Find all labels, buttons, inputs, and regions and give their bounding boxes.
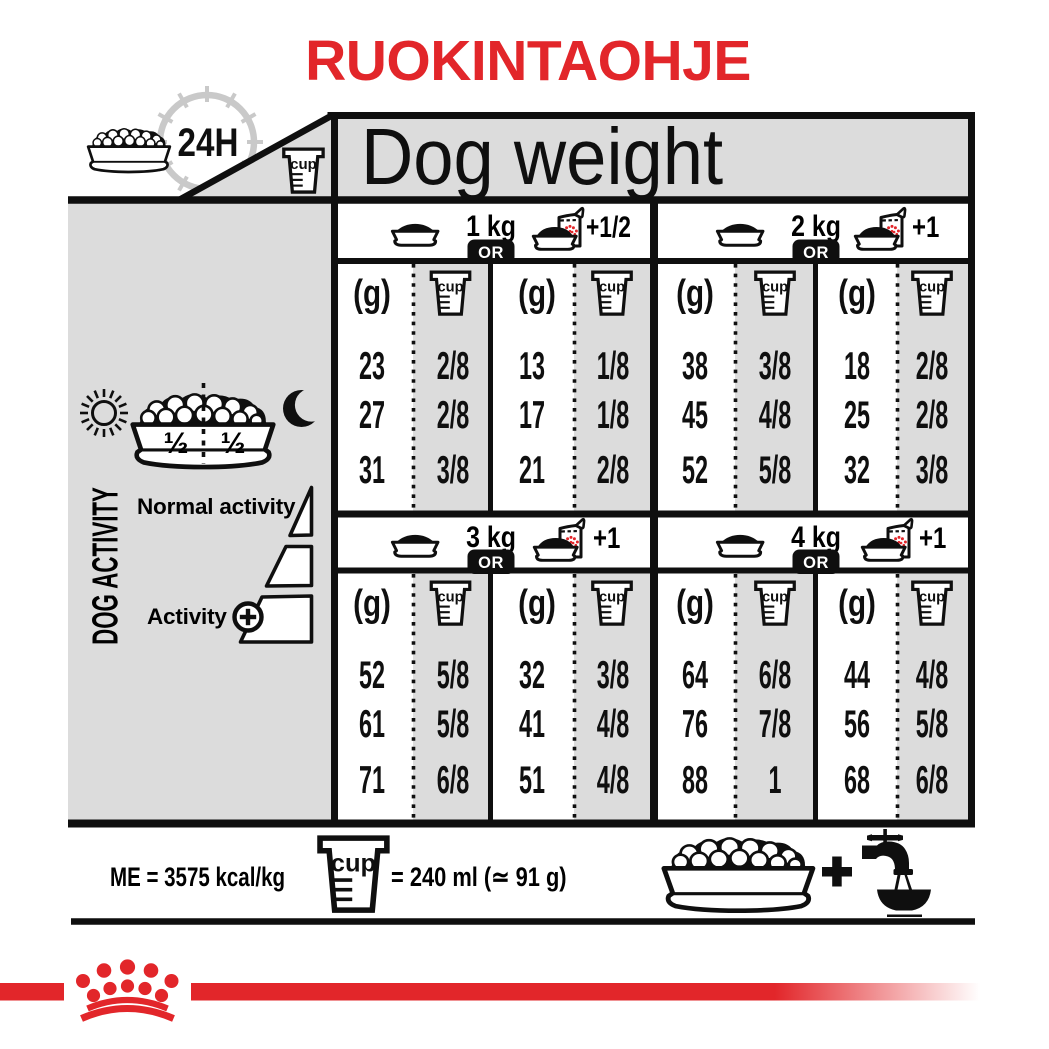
svg-text:38: 38 <box>682 344 708 388</box>
svg-text:(g): (g) <box>518 273 556 315</box>
svg-text:1/8: 1/8 <box>597 344 630 388</box>
svg-text:52: 52 <box>359 653 385 697</box>
svg-text:½: ½ <box>220 427 245 460</box>
svg-text:3 kg: 3 kg <box>466 520 516 554</box>
svg-text:44: 44 <box>844 653 870 697</box>
svg-text:½: ½ <box>163 427 188 460</box>
svg-text:4/8: 4/8 <box>916 653 949 697</box>
svg-text:4/8: 4/8 <box>597 702 630 746</box>
svg-text:(g): (g) <box>676 273 714 315</box>
svg-text:Dog weight: Dog weight <box>361 113 723 202</box>
svg-text:Normal activity: Normal activity <box>137 494 296 519</box>
svg-text:61: 61 <box>359 702 385 746</box>
svg-text:ME = 3575 kcal/kg: ME = 3575 kcal/kg <box>110 862 285 892</box>
svg-text:(g): (g) <box>353 273 391 315</box>
svg-text:4 kg: 4 kg <box>791 520 841 554</box>
svg-text:4/8: 4/8 <box>597 758 630 802</box>
svg-text:+1: +1 <box>593 520 620 554</box>
svg-text:21: 21 <box>519 448 545 492</box>
svg-text:5/8: 5/8 <box>437 702 470 746</box>
svg-text:2/8: 2/8 <box>437 344 470 388</box>
svg-text:7/8: 7/8 <box>759 702 792 746</box>
svg-text:3/8: 3/8 <box>437 448 470 492</box>
svg-text:32: 32 <box>519 653 545 697</box>
svg-text:OR: OR <box>803 554 829 572</box>
svg-text:Activity: Activity <box>147 604 227 629</box>
svg-text:18: 18 <box>844 344 870 388</box>
svg-text:31: 31 <box>359 448 385 492</box>
svg-text:13: 13 <box>519 344 545 388</box>
svg-text:4/8: 4/8 <box>759 393 792 437</box>
svg-text:6/8: 6/8 <box>437 758 470 802</box>
svg-text:1: 1 <box>768 758 781 802</box>
svg-text:+1: +1 <box>912 209 939 243</box>
svg-text:88: 88 <box>682 758 708 802</box>
svg-text:2/8: 2/8 <box>597 448 630 492</box>
svg-text:1 kg: 1 kg <box>466 209 516 243</box>
svg-text:2/8: 2/8 <box>916 344 949 388</box>
svg-text:= 240 ml (≃ 91 g): = 240 ml (≃ 91 g) <box>391 863 567 893</box>
svg-text:3/8: 3/8 <box>916 448 949 492</box>
svg-text:RUOKINTAOHJE: RUOKINTAOHJE <box>305 29 751 93</box>
svg-text:71: 71 <box>359 758 385 802</box>
svg-text:52: 52 <box>682 448 708 492</box>
svg-text:41: 41 <box>519 702 545 746</box>
svg-text:(g): (g) <box>353 583 391 625</box>
svg-text:17: 17 <box>519 393 545 437</box>
svg-text:3/8: 3/8 <box>597 653 630 697</box>
svg-text:45: 45 <box>682 393 708 437</box>
svg-text:OR: OR <box>478 554 504 572</box>
svg-text:OR: OR <box>478 244 504 262</box>
svg-text:56: 56 <box>844 702 870 746</box>
svg-text:23: 23 <box>359 344 385 388</box>
svg-text:OR: OR <box>803 244 829 262</box>
svg-text:64: 64 <box>682 653 708 697</box>
svg-text:51: 51 <box>519 758 545 802</box>
svg-text:+1/2: +1/2 <box>586 210 631 244</box>
svg-text:(g): (g) <box>518 583 556 625</box>
svg-text:6/8: 6/8 <box>916 758 949 802</box>
svg-text:(g): (g) <box>838 583 876 625</box>
svg-text:2 kg: 2 kg <box>791 209 841 243</box>
svg-text:68: 68 <box>844 758 870 802</box>
svg-text:24H: 24H <box>178 120 239 165</box>
svg-text:25: 25 <box>844 393 870 437</box>
svg-text:1/8: 1/8 <box>597 393 630 437</box>
svg-text:+1: +1 <box>919 520 946 554</box>
svg-text:5/8: 5/8 <box>759 448 792 492</box>
svg-text:2/8: 2/8 <box>916 393 949 437</box>
svg-text:DOG ACTIVITY: DOG ACTIVITY <box>86 487 126 645</box>
svg-text:5/8: 5/8 <box>916 702 949 746</box>
svg-text:3/8: 3/8 <box>759 344 792 388</box>
svg-text:(g): (g) <box>838 273 876 315</box>
svg-text:76: 76 <box>682 702 708 746</box>
svg-text:2/8: 2/8 <box>437 393 470 437</box>
svg-text:27: 27 <box>359 393 385 437</box>
svg-text:5/8: 5/8 <box>437 653 470 697</box>
svg-text:6/8: 6/8 <box>759 653 792 697</box>
svg-text:32: 32 <box>844 448 870 492</box>
svg-text:(g): (g) <box>676 583 714 625</box>
